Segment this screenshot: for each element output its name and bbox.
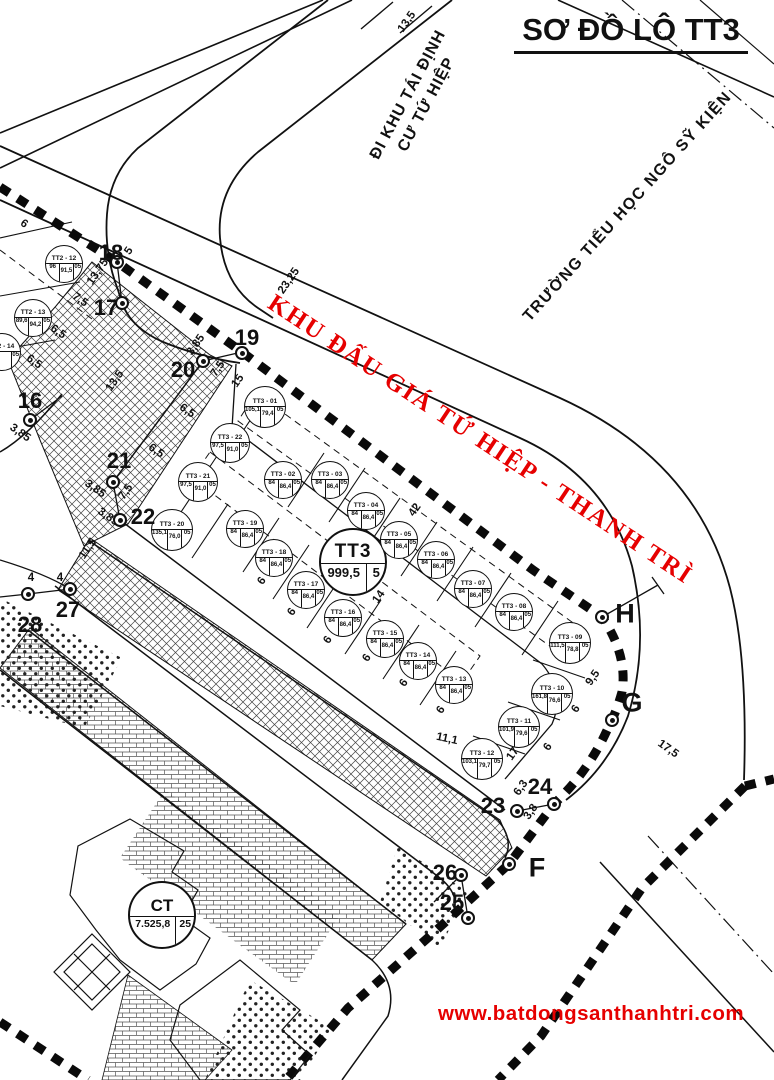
plot-circle-tt3-20: TT3 - 20135,176,005	[151, 509, 193, 551]
plot-built-area: 86,4	[339, 618, 352, 636]
plot-built-area: 78,8	[566, 643, 581, 663]
plot-circle-tt3-06: TT3 - 068486,405	[417, 541, 455, 579]
plot-circle-tt3-18: TT3 - 188486,405	[255, 539, 293, 577]
node-center-dot	[552, 802, 557, 807]
plot-built-area: 86,4	[469, 589, 482, 607]
boundary-node-marker-16	[23, 413, 37, 427]
boundary-node-label-f: F	[529, 853, 546, 884]
node-center-dot	[120, 301, 125, 306]
node-center-dot	[610, 718, 615, 723]
boundary-node-marker-23	[510, 804, 524, 818]
plot-circle-tt3-08: TT3 - 088486,405	[495, 593, 533, 631]
plot-circle-tt3-02: TT3 - 028486,405	[264, 461, 302, 499]
boundary-node-label-17: 17	[94, 295, 118, 321]
plot-circle-tt3-09: TT3 - 09111,578,805	[549, 622, 591, 664]
node-center-dot	[600, 615, 605, 620]
boundary-node-marker-h	[595, 610, 609, 624]
plot-circle-tt3-22: TT3 - 2297,591,005	[210, 423, 250, 463]
plot-circle-tt3-19: TT3 - 198486,405	[226, 510, 264, 548]
node-center-dot	[111, 480, 116, 485]
plot-built-area: 76,0	[168, 530, 183, 550]
plot-built-area: 76,6	[548, 694, 563, 714]
node-center-dot	[466, 916, 471, 921]
plot-circle-tt3-07: TT3 - 078486,405	[454, 570, 492, 608]
boundary-node-label-25: 25	[440, 890, 464, 916]
plot-built-area: 79,6	[515, 727, 530, 747]
boundary-node-label-28: 28	[18, 612, 42, 638]
plot-built-area: 91,0	[226, 443, 240, 462]
boundary-node-marker-f	[502, 857, 516, 871]
boundary-node-label-h: H	[615, 599, 635, 630]
node-center-dot	[68, 587, 73, 592]
plot-built-area: 86,4	[326, 480, 339, 498]
node-center-dot	[240, 351, 245, 356]
node-center-dot	[515, 809, 520, 814]
plot-built-area: 91,0	[194, 482, 208, 501]
plot-built-area: 86,4	[270, 558, 283, 576]
plot-circle-tt2-13: TT2 - 1389,694,205	[14, 299, 52, 337]
plot-built-area: 79,4	[261, 407, 276, 427]
plot-built-area: 86,4	[395, 540, 408, 558]
node-center-dot	[28, 418, 33, 423]
boundary-node-marker-27	[63, 582, 77, 596]
node-center-dot	[201, 359, 206, 364]
boundary-node-label-g: G	[621, 688, 642, 719]
plot-built-area: 86,4	[510, 612, 523, 630]
plot-circle-tt3-13: TT3 - 138486,405	[435, 666, 473, 704]
plot-circle-tt3-15: TT3 - 158486,405	[366, 620, 404, 658]
block-circle-ct: CT 7.525,8 25	[128, 881, 196, 949]
plot-built-area: 91,5	[60, 264, 73, 282]
boundary-node-marker-21	[106, 475, 120, 489]
plot-circle-tt3-01: TT3 - 01105,179,405	[244, 386, 286, 428]
boundary-node-label-26: 26	[433, 860, 457, 886]
plot-circle-tt3-04: TT3 - 048486,405	[347, 492, 385, 530]
plot-circle-tt3-10: TT3 - 10161,876,605	[531, 673, 573, 715]
plot-circle-tt3-16: TT3 - 168486,405	[324, 599, 362, 637]
plot-built-area: 86,4	[432, 560, 445, 578]
plot-circle-tt2-12: TT2 - 129691,505	[45, 245, 83, 283]
plot-built-area: 86,4	[279, 480, 292, 498]
map-canvas: TT3 999,5 5 CT 7.525,8 25 TT2 - 129691,5…	[0, 0, 774, 1080]
node-center-dot	[118, 518, 123, 523]
boundary-node-label-20: 20	[171, 357, 195, 383]
node-center-dot	[459, 873, 464, 878]
plot-built-area	[0, 352, 12, 370]
plot-built-area: 94,2	[29, 318, 42, 336]
boundary-node-label-18: 18	[99, 240, 123, 266]
plot-circle-tt3-12: TT3 - 12103,179,705	[461, 738, 503, 780]
boundary-node-marker-20	[196, 354, 210, 368]
plot-built-area: 86,4	[414, 661, 427, 679]
node-center-dot	[26, 592, 31, 597]
dimension-label: 4	[57, 572, 63, 584]
plot-circle-tt3-21: TT3 - 2197,591,005	[178, 462, 218, 502]
boundary-node-marker-28	[21, 587, 35, 601]
dimension-label: 4	[28, 572, 34, 584]
plot-circle-tt3-14: TT3 - 148486,405	[399, 642, 437, 680]
boundary-node-label-27: 27	[56, 597, 80, 623]
boundary-node-label-24: 24	[528, 774, 552, 800]
boundary-node-label-21: 21	[107, 448, 131, 474]
boundary-node-label-23: 23	[481, 793, 505, 819]
block-circle-tt3: TT3 999,5 5	[319, 528, 387, 596]
plot-circle-tt3-03: TT3 - 038486,405	[311, 461, 349, 499]
plot-built-area: 86,4	[381, 639, 394, 657]
boundary-node-label-16: 16	[18, 388, 42, 414]
plot-built-area: 86,4	[302, 590, 315, 608]
boundary-node-marker-g	[605, 713, 619, 727]
plot-built-area: 79,7	[478, 759, 493, 779]
plot-built-area: 86,4	[362, 511, 375, 529]
plot-built-area: 86,4	[241, 529, 254, 547]
boundary-node-marker-22	[113, 513, 127, 527]
node-center-dot	[507, 862, 512, 867]
plot-circle-tt3-17: TT3 - 178486,405	[287, 571, 325, 609]
plot-circle-tt3-05: TT3 - 058486,405	[380, 521, 418, 559]
plot-circle-tt3-11: TT3 - 11101,979,605	[498, 706, 540, 748]
boundary-node-label-19: 19	[235, 325, 259, 351]
website-url: www.batdongsanthanhtri.com	[438, 1002, 744, 1026]
boundary-node-label-22: 22	[131, 504, 155, 530]
page-title: SƠ ĐỒ LÔ TT3	[514, 12, 748, 54]
plot-built-area: 86,4	[450, 685, 463, 703]
